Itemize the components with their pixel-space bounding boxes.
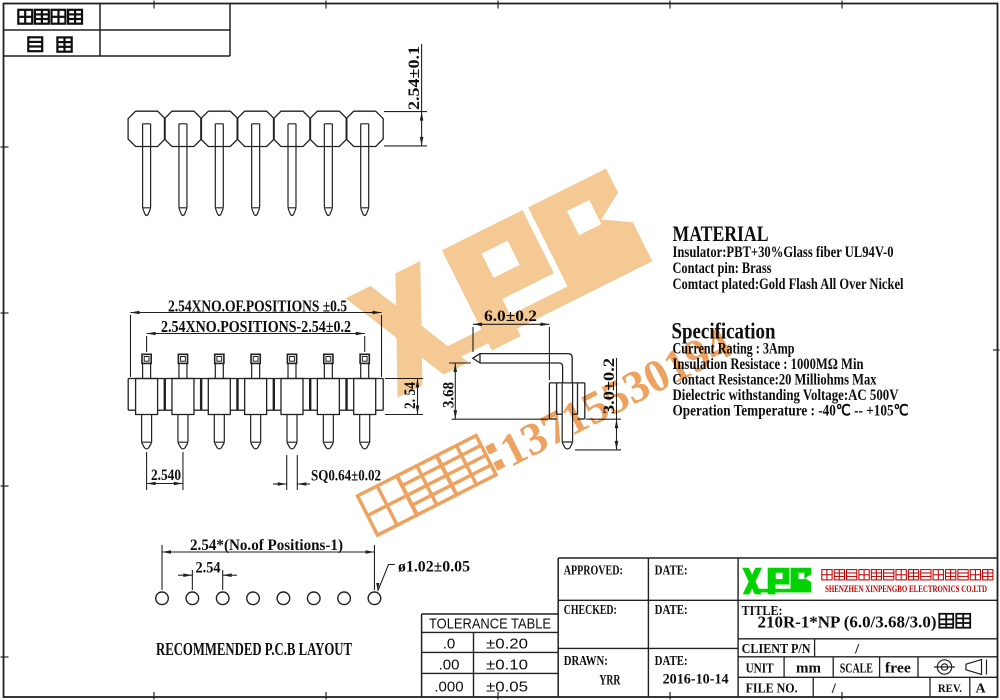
svg-text:DRAWN:: DRAWN: — [564, 653, 608, 668]
svg-text:/: / — [831, 681, 837, 697]
svg-text:Comtact plated:Gold Flash All: Comtact plated:Gold Flash All Over Nicke… — [673, 276, 905, 293]
svg-text:210R-1*NP (6.0/3.68/3.0): 210R-1*NP (6.0/3.68/3.0) — [758, 613, 937, 632]
svg-text:DATE:: DATE: — [655, 563, 688, 578]
svg-text:2.54XNO.OF.POSITIONS ±0.5: 2.54XNO.OF.POSITIONS ±0.5 — [168, 297, 347, 316]
svg-text:Insulator:PBT+30%Glass fiber U: Insulator:PBT+30%Glass fiber UL94V-0 — [673, 244, 894, 261]
svg-text:2016-10-14: 2016-10-14 — [663, 671, 729, 687]
svg-text:DATE:: DATE: — [655, 653, 688, 668]
svg-text:/: / — [854, 642, 860, 658]
svg-text:A: A — [976, 682, 987, 697]
svg-text:FILE NO.: FILE NO. — [746, 681, 798, 696]
svg-text:free: free — [885, 661, 912, 677]
svg-text:DATE:: DATE: — [655, 602, 688, 617]
svg-text:.0: .0 — [443, 636, 456, 653]
svg-text:±0.20: ±0.20 — [486, 636, 528, 653]
svg-text:MATERIAL: MATERIAL — [673, 221, 769, 246]
svg-text:CHECKED:: CHECKED: — [564, 602, 617, 617]
svg-text:mm: mm — [796, 661, 821, 677]
svg-text:2.54: 2.54 — [196, 560, 221, 577]
svg-text:2.540: 2.540 — [151, 467, 181, 484]
svg-text:SQ0.64±0.02: SQ0.64±0.02 — [311, 468, 381, 485]
svg-text:3.68: 3.68 — [441, 382, 458, 408]
svg-text:RECOMMENDED P.C.B LAYOUT: RECOMMENDED P.C.B LAYOUT — [156, 639, 352, 659]
svg-text:2.54±0.1: 2.54±0.1 — [406, 46, 423, 110]
svg-text:.000: .000 — [434, 679, 463, 696]
svg-text:.00: .00 — [439, 657, 460, 674]
svg-text:CLIENT P/N: CLIENT P/N — [742, 641, 811, 656]
svg-text:UNIT: UNIT — [746, 661, 774, 676]
svg-text:Contact pin: Brass: Contact pin: Brass — [673, 260, 772, 277]
svg-text:APPROVED:: APPROVED: — [564, 563, 623, 578]
svg-text:YRR: YRR — [599, 673, 620, 689]
svg-text:±0.10: ±0.10 — [486, 657, 528, 674]
svg-text:Operation Temperature : -40℃: Operation Temperature : -40℃ -- +105℃ — [673, 402, 910, 419]
svg-text:SCALE: SCALE — [840, 661, 873, 676]
svg-text:TOLERANCE TABLE: TOLERANCE TABLE — [429, 617, 551, 633]
svg-text:REV.: REV. — [938, 681, 962, 695]
svg-text:±0.05: ±0.05 — [486, 679, 528, 696]
svg-text:ø1.02±0.05: ø1.02±0.05 — [398, 559, 470, 576]
svg-text:2.54*(No.of Positions-1): 2.54*(No.of Positions-1) — [190, 537, 343, 554]
svg-text:SHENZHEN XINPENGBO ELECTRONICS: SHENZHEN XINPENGBO ELECTRONICS CO.LTD — [825, 585, 987, 595]
svg-text:2.54XNO.POSITIONS-2.54±0.2: 2.54XNO.POSITIONS-2.54±0.2 — [161, 317, 351, 336]
